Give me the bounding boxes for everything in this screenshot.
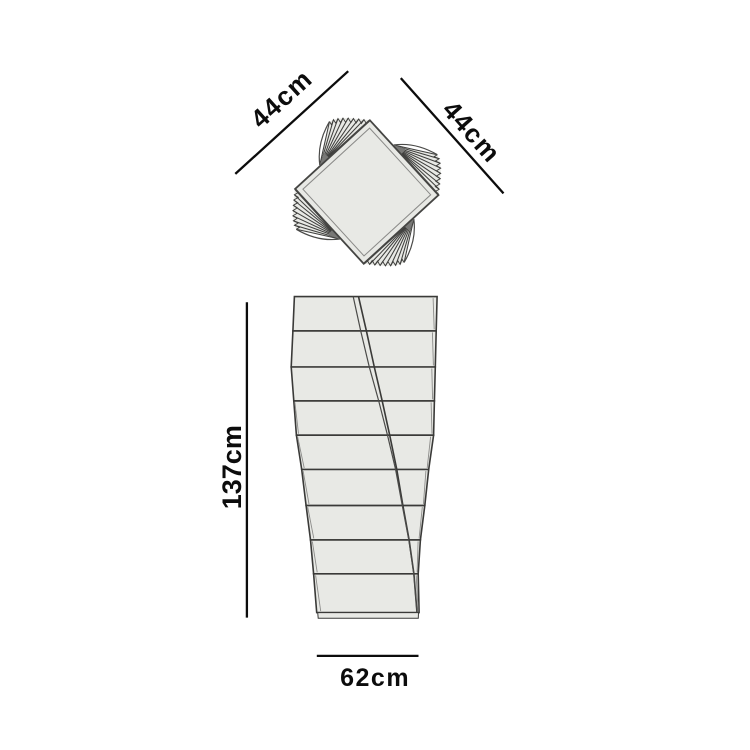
svg-text:62cm: 62cm	[340, 664, 410, 692]
svg-text:137cm: 137cm	[217, 425, 247, 509]
